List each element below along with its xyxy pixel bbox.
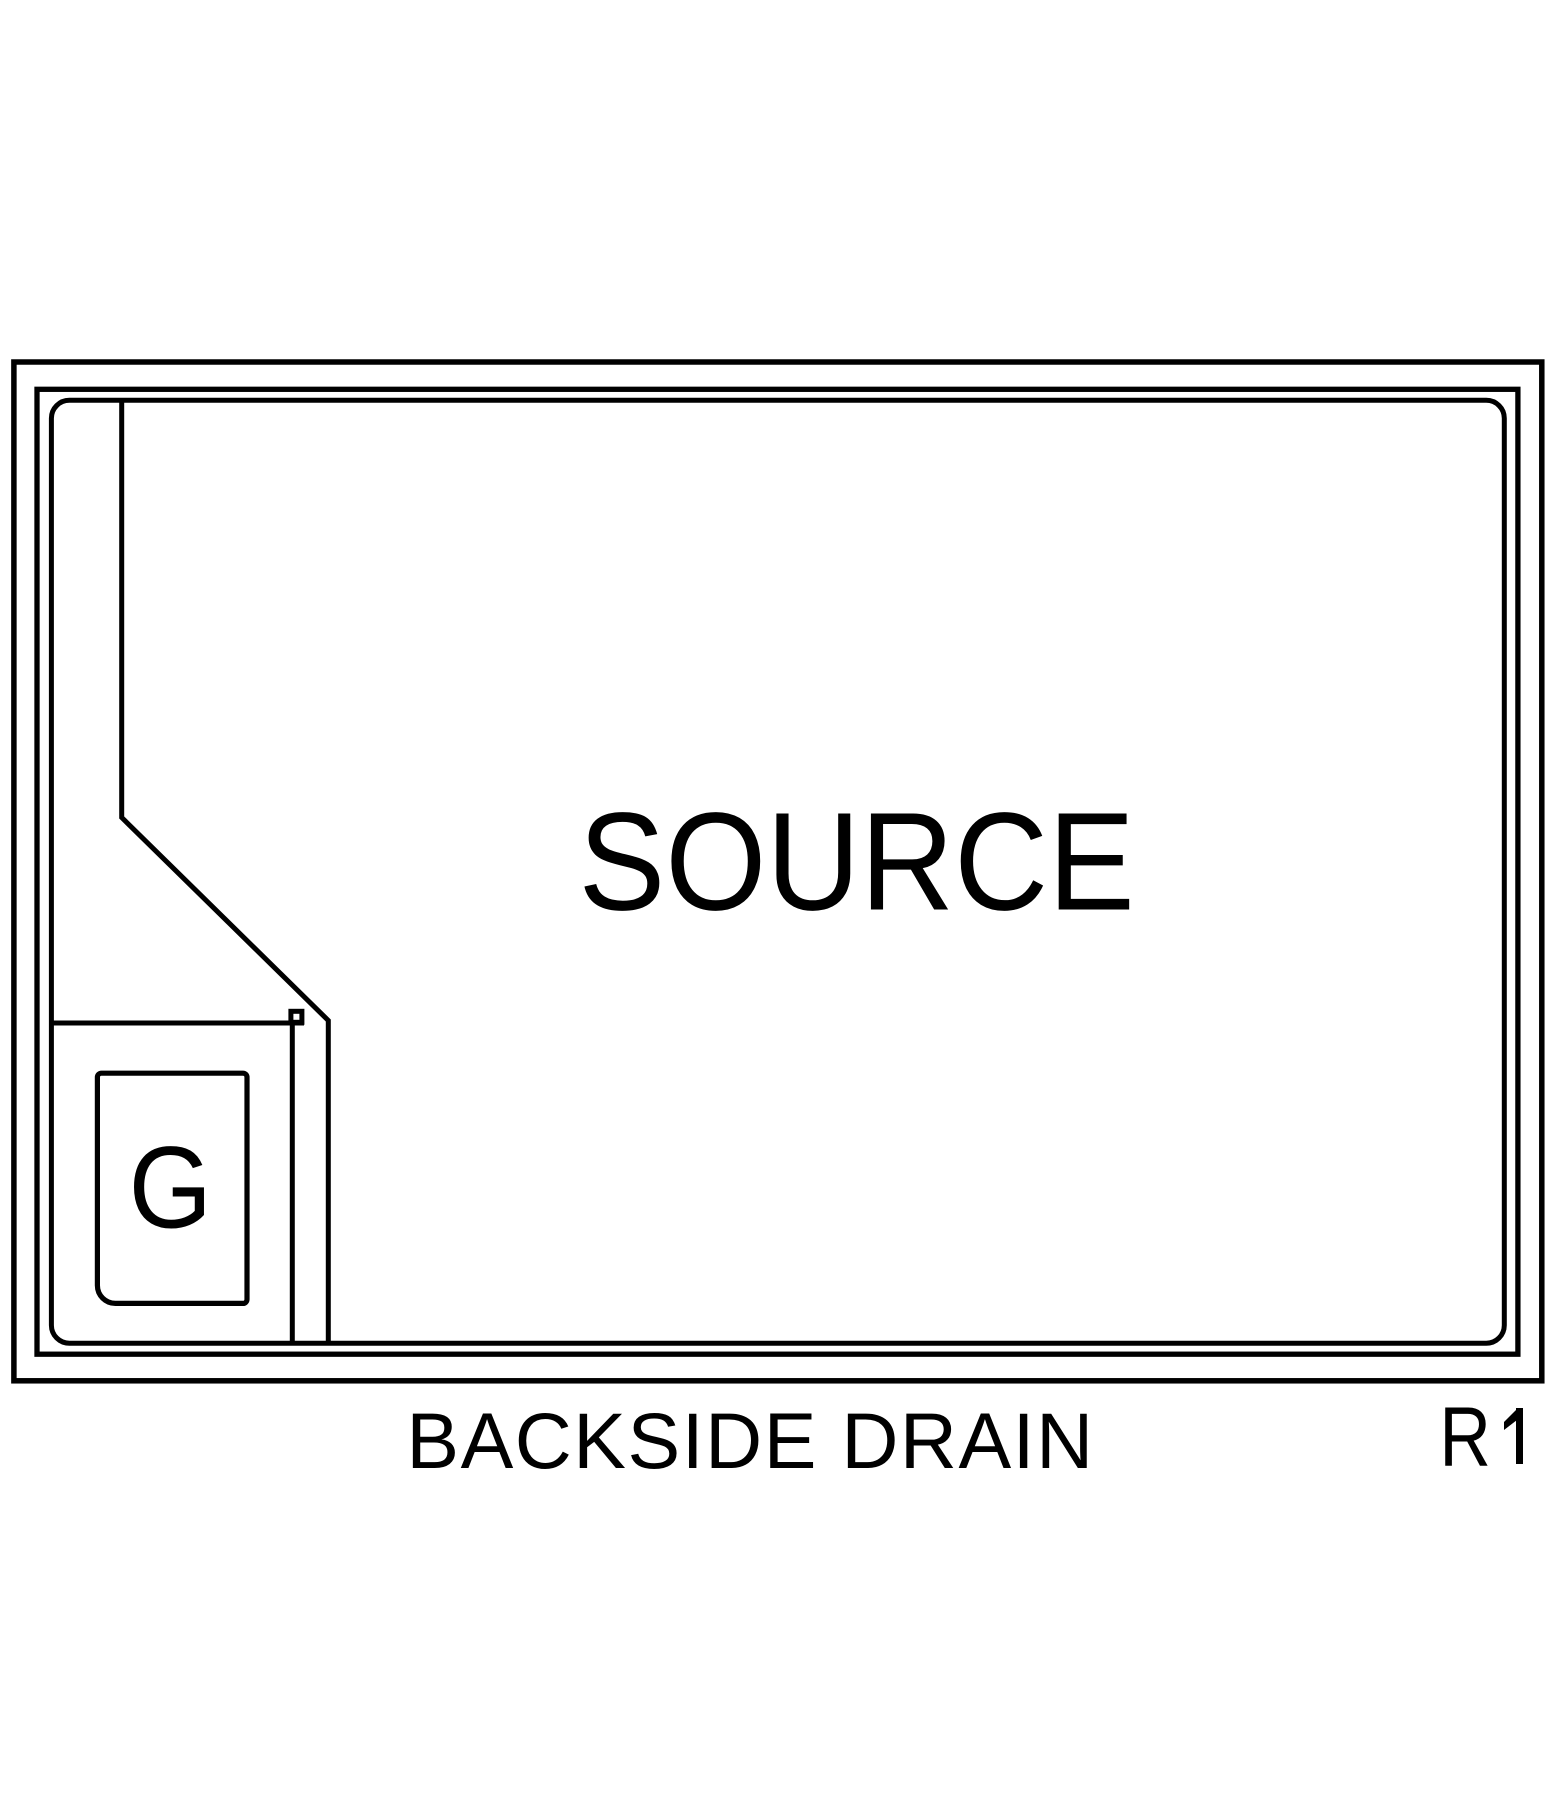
svg-text:G: G xyxy=(129,1122,212,1252)
svg-text:SOURCE: SOURCE xyxy=(579,783,1135,939)
svg-text:BACKSIDE DRAIN: BACKSIDE DRAIN xyxy=(406,1396,1094,1485)
svg-text:R: R xyxy=(1439,1389,1491,1484)
